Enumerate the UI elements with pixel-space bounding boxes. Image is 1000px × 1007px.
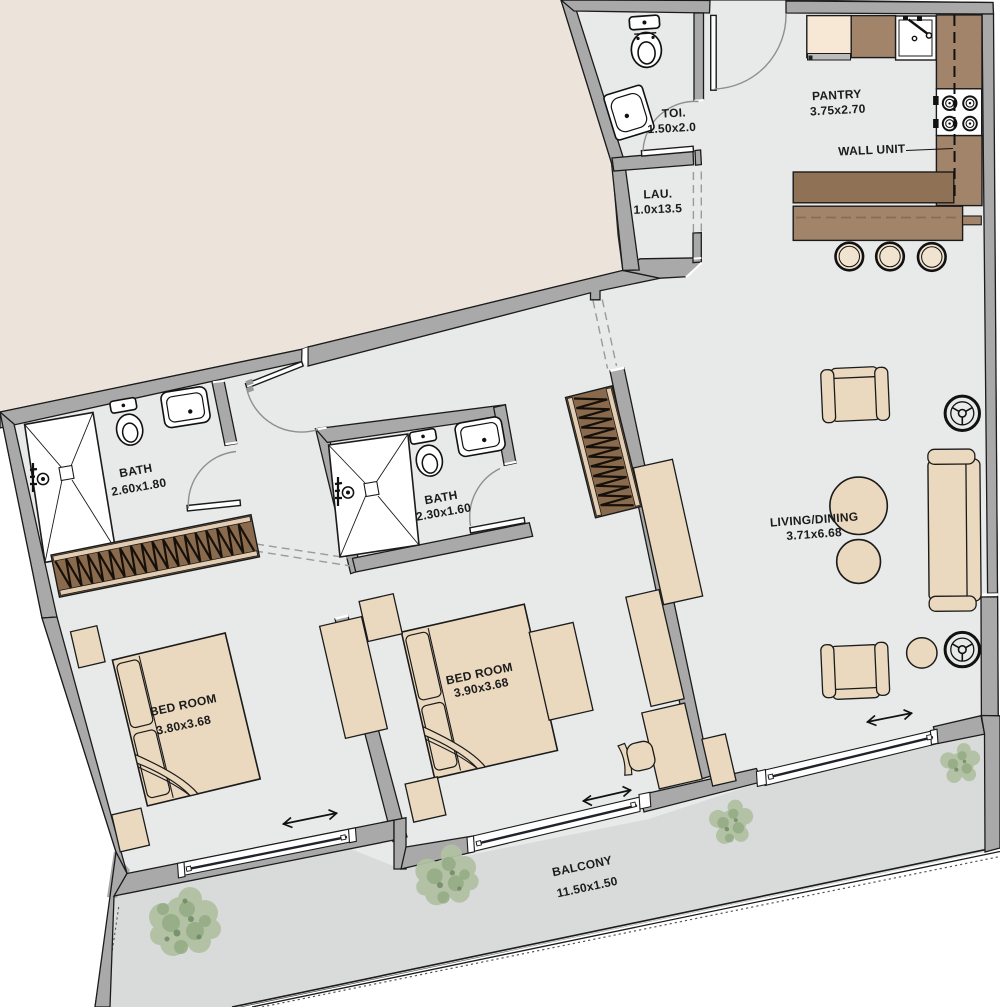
svg-text:PANTRY: PANTRY <box>812 87 862 104</box>
svg-text:WALL UNIT: WALL UNIT <box>838 142 906 159</box>
svg-text:1.50x2.0: 1.50x2.0 <box>647 120 696 137</box>
svg-text:3.75x2.70: 3.75x2.70 <box>810 102 866 119</box>
svg-text:1.0x13.5: 1.0x13.5 <box>633 201 682 217</box>
svg-text:LAU.: LAU. <box>643 187 672 202</box>
svg-text:TOI.: TOI. <box>661 105 686 120</box>
